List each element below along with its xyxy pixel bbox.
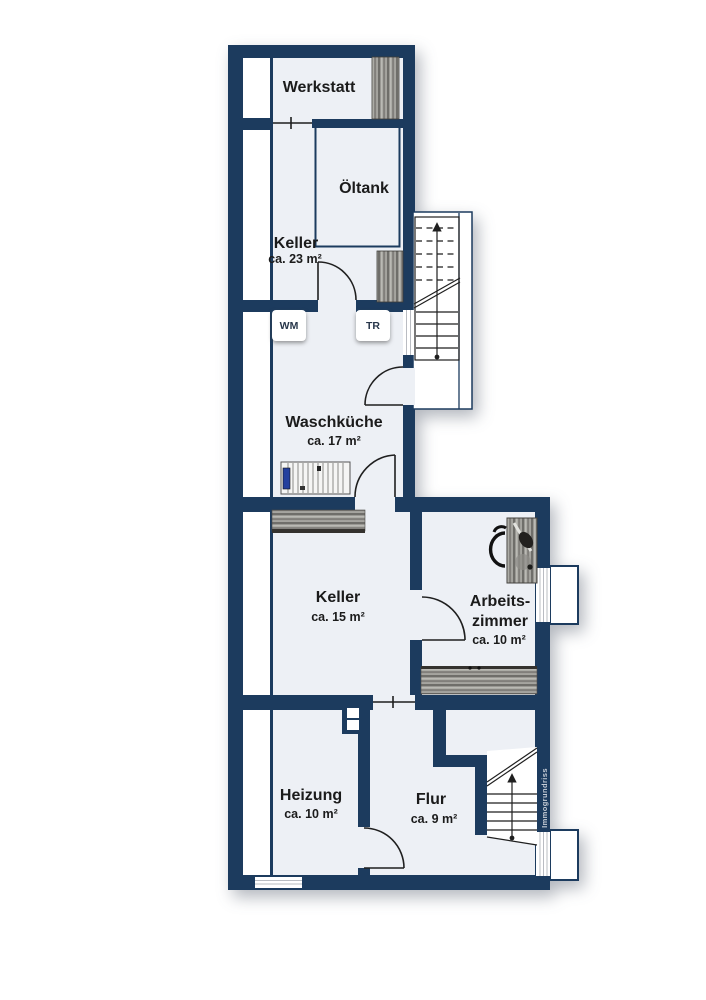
window-stair-lower (536, 832, 550, 876)
drying-rack (281, 462, 350, 494)
size-arbeitszimmer: ca. 10 m² (472, 633, 526, 647)
desk-arbeitszimmer (507, 518, 537, 583)
label-waschkueche: Waschküche (285, 414, 382, 431)
chimney-flue-2 (347, 720, 359, 730)
size-flur: ca. 9 m² (411, 812, 458, 826)
label-oeltank: Öltank (339, 178, 389, 197)
label-arbeitszimmer-1: Arbeits- (470, 593, 530, 610)
left-shaft-4 (243, 512, 270, 695)
size-heizung: ca. 10 m² (284, 807, 338, 821)
stair-side-wall (475, 767, 487, 835)
left-shaft-3 (243, 312, 270, 497)
window-arbeitszimmer (536, 568, 550, 622)
label-keller23: Keller (274, 235, 318, 252)
shelf-keller23 (377, 251, 403, 302)
window-stair-annex (403, 310, 415, 355)
doorway-keller15-arbeitszimmer (410, 590, 422, 640)
dryer-label: TR (366, 320, 380, 332)
left-shaft-2 (243, 130, 270, 300)
label-arbeitszimmer-2: zimmer (472, 613, 528, 630)
light-well-upper (550, 566, 578, 624)
label-flur: Flur (416, 791, 446, 808)
shelf-arbeitszimmer-bottom (421, 666, 537, 694)
workbench-werkstatt (372, 57, 399, 119)
doorway-keller23 (318, 300, 356, 312)
label-heizung: Heizung (280, 787, 342, 804)
light-well-lower (550, 830, 578, 880)
rack-accent (283, 468, 290, 489)
label-keller15: Keller (316, 589, 360, 606)
doorway-heizung-flur (358, 827, 370, 868)
shelf-keller15 (272, 510, 365, 533)
desk-mouse (527, 564, 532, 569)
flur-wall-horizontal (442, 755, 487, 767)
size-waschkueche: ca. 17 m² (307, 434, 361, 448)
floor-plan-page: WM TR Werkstatt Öltank Keller ca. 23 m² … (0, 0, 706, 1000)
left-shaft-1 (243, 58, 270, 118)
size-keller15: ca. 15 m² (311, 610, 365, 624)
washing-machine-card: WM (272, 310, 306, 341)
size-keller23: ca. 23 m² (268, 252, 322, 266)
washing-machine-label: WM (280, 320, 299, 332)
left-shaft-5 (243, 710, 270, 875)
dryer-card: TR (356, 310, 390, 341)
label-werkstatt: Werkstatt (283, 79, 356, 96)
staircase-lower (487, 747, 537, 845)
floor-plan-drawing: WM TR Werkstatt Öltank Keller ca. 23 m² … (0, 0, 706, 1000)
doorway-stair-waschkueche (403, 368, 415, 405)
window-heizung-bottom (255, 877, 302, 888)
chimney-flue-1 (347, 708, 359, 718)
watermark-text: Immogrundriss (540, 768, 549, 828)
